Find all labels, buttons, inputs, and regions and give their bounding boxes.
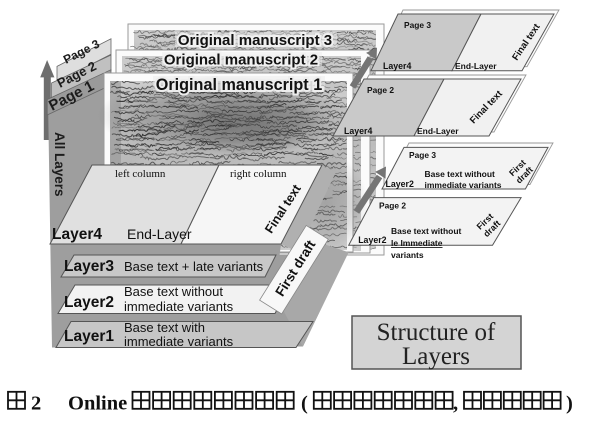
svg-text:Layer4: Layer4 [383, 61, 411, 71]
svg-text:End-Layer: End-Layer [455, 61, 497, 71]
svg-text:Layers: Layers [402, 343, 470, 370]
svg-text:Layer2: Layer2 [386, 179, 414, 189]
svg-text:immediate variants: immediate variants [124, 334, 234, 349]
svg-text:End-Layer: End-Layer [417, 126, 459, 136]
svg-text:variants: variants [391, 250, 424, 260]
svg-text:2: 2 [31, 393, 41, 415]
svg-text:immediate variants: immediate variants [124, 299, 234, 314]
svg-text:Base text with: Base text with [124, 320, 205, 335]
svg-text:Layer1: Layer1 [64, 328, 114, 345]
svg-text:Layer4: Layer4 [52, 226, 102, 243]
svg-text:Page 2: Page 2 [367, 85, 394, 95]
svg-text:immediate variants: immediate variants [425, 180, 502, 190]
svg-text:Layer3: Layer3 [64, 258, 114, 275]
svg-text:Page 3: Page 3 [409, 150, 436, 160]
svg-text:Base text without: Base text without [124, 284, 223, 299]
svg-text:Original manuscript 2: Original manuscript 2 [164, 52, 318, 69]
svg-text:Layer2: Layer2 [64, 294, 114, 311]
svg-text:Base text without: Base text without [425, 169, 496, 179]
svg-text:Original manuscript 1: Original manuscript 1 [156, 76, 322, 94]
svg-text:le Immediate: le Immediate [391, 238, 443, 248]
svg-text:Layer4: Layer4 [344, 126, 372, 136]
svg-text:Structure of: Structure of [377, 319, 496, 346]
svg-text:Base text + late variants: Base text + late variants [124, 259, 264, 274]
svg-text:,: , [453, 393, 458, 415]
svg-text:Online: Online [68, 393, 127, 415]
svg-text:Layer2: Layer2 [358, 235, 386, 245]
svg-text:All Layers: All Layers [52, 132, 67, 197]
svg-text:): ) [566, 393, 573, 415]
svg-text:(: ( [301, 393, 308, 415]
svg-text:Original manuscript 3: Original manuscript 3 [178, 32, 332, 49]
svg-text:End-Layer: End-Layer [127, 226, 192, 242]
svg-text:Base text without: Base text without [391, 226, 462, 236]
svg-text:left column: left column [115, 168, 166, 180]
svg-text:right column: right column [230, 168, 287, 180]
svg-text:Page 2: Page 2 [379, 201, 406, 211]
svg-text:Page 3: Page 3 [404, 20, 431, 30]
